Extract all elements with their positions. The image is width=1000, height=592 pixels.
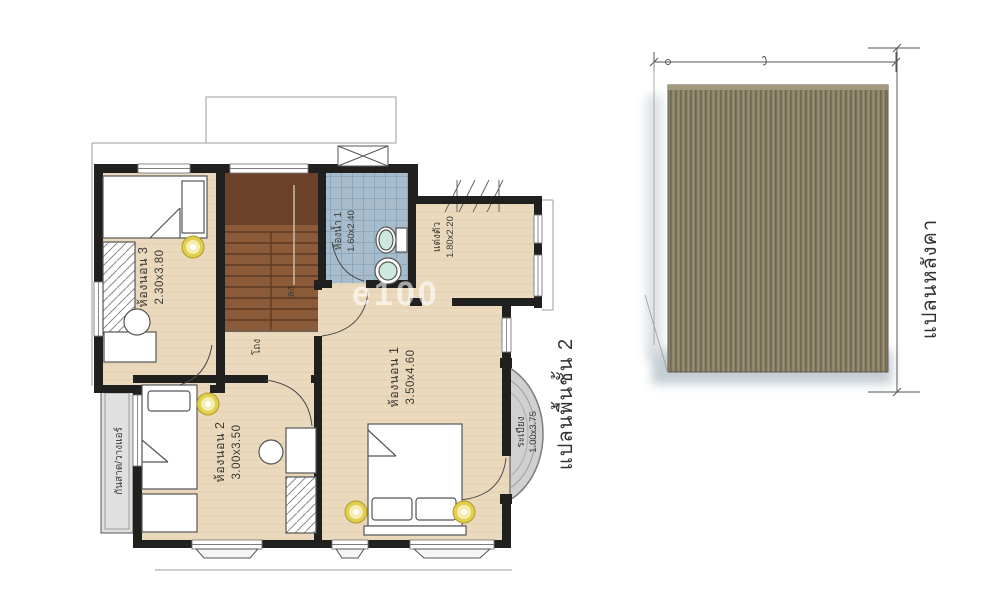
svg-text:1.80x2.20: 1.80x2.20: [445, 216, 456, 258]
stairs-down-label: ลง: [286, 286, 297, 297]
svg-text:3.50x4.60: 3.50x4.60: [405, 349, 417, 404]
svg-text:แปลนหลังคา: แปลนหลังคา: [919, 219, 941, 339]
svg-text:ห้องน้ำ 1: ห้องน้ำ 1: [330, 211, 344, 250]
room-label-canopy: กันสาด/วางแอร์: [113, 426, 125, 494]
svg-text:ห้องนอน 3: ห้องนอน 3: [136, 247, 150, 308]
svg-text:โถง: โถง: [250, 339, 263, 355]
ceiling-lamp-icon: [453, 501, 475, 523]
svg-text:กันสาด/วางแอร์: กันสาด/วางแอร์: [113, 426, 125, 494]
svg-text:ระเบียง: ระเบียง: [515, 416, 527, 447]
svg-text:ลง: ลง: [286, 286, 297, 297]
room-label-bathroom1: ห้องน้ำ 1 1.60x2.40: [330, 210, 357, 252]
svg-text:แต่งตัว: แต่งตัว: [432, 222, 443, 252]
room-label-hall: โถง: [250, 339, 263, 355]
toilet-icon: [376, 227, 407, 253]
svg-text:ห้องนอน 2: ห้องนอน 2: [213, 422, 227, 483]
roof-plan: แปลนหลังคา: [645, 44, 941, 396]
ceiling-lamp-icon: [197, 393, 219, 415]
svg-text:1.00x3.75: 1.00x3.75: [528, 411, 539, 453]
floorplan-drawing: e100 ห้องนอน 3 2.30x3.80 ห้องน้ำ 1 1.60x…: [0, 0, 1000, 592]
svg-text:1.60x2.40: 1.60x2.40: [346, 210, 357, 252]
blueprint-page: e100 ห้องนอน 3 2.30x3.80 ห้องน้ำ 1 1.60x…: [0, 0, 1000, 592]
floor-plan-title: แปลนพื้นชั้น 2: [551, 338, 577, 470]
ceiling-lamp-icon: [182, 236, 204, 258]
roof-sheet: [668, 85, 888, 372]
ceiling-lamp-icon: [345, 501, 367, 523]
svg-text:3.00x3.50: 3.00x3.50: [231, 424, 243, 479]
svg-text:แปลนพื้นชั้น 2: แปลนพื้นชั้น 2: [551, 338, 577, 470]
staircase: [223, 170, 318, 332]
floor-plan: e100 ห้องนอน 3 2.30x3.80 ห้องน้ำ 1 1.60x…: [92, 97, 577, 570]
watermark: e100: [352, 275, 440, 313]
svg-text:ห้องนอน 1: ห้องนอน 1: [387, 347, 401, 408]
roof-ridge: [668, 85, 888, 90]
roof-plan-title: แปลนหลังคา: [919, 219, 941, 339]
svg-text:2.30x3.80: 2.30x3.80: [154, 249, 166, 304]
